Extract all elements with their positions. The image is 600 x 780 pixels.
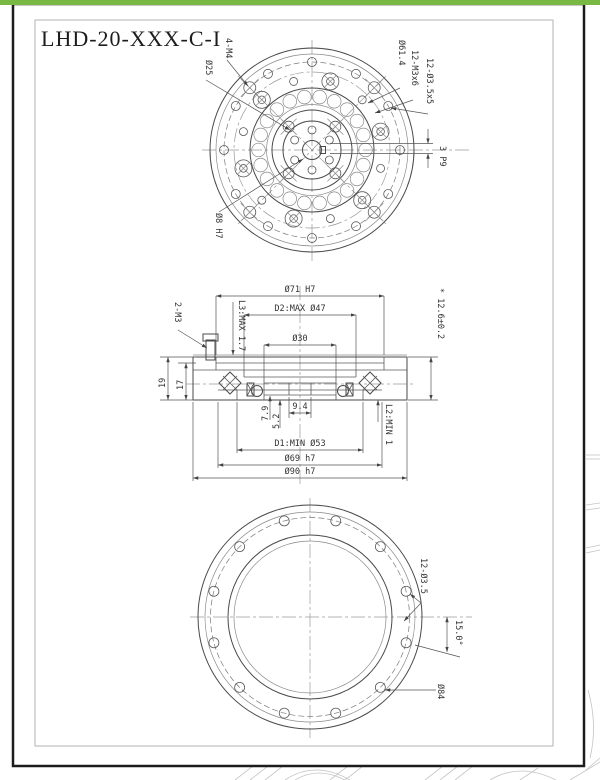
label-d84: Ø84	[435, 684, 446, 699]
label-keyway: 3 P9	[437, 146, 447, 166]
sketch-arc	[490, 771, 556, 780]
sketch-line	[235, 766, 253, 780]
label-12d35x5: 12-Ø3.5x5	[424, 58, 435, 104]
dim-d1-text: D1:MIN Ø53	[274, 438, 325, 449]
accent-top-bar	[0, 0, 600, 5]
dim-d90-text: Ø90 h7	[285, 466, 316, 477]
label-12m3x6: 12-M3x6	[409, 50, 419, 86]
sketch-line	[440, 766, 458, 780]
dim-angle-text: 15.0°	[453, 620, 463, 646]
sketch-arc	[588, 690, 594, 758]
sketch-line	[265, 766, 283, 780]
dim-l2-text: L2:MIN 1	[383, 404, 393, 445]
dim-94-text: 9.4	[292, 402, 307, 412]
sketch-line	[455, 766, 473, 780]
label-bore: Ø8 H7	[213, 213, 224, 239]
sketch-line	[586, 545, 600, 553]
dim-17-text: 17	[176, 380, 186, 390]
dim-19-text: 19	[158, 378, 168, 388]
sketch-line	[425, 766, 443, 780]
dim-d2-text: D2:MAX Ø47	[274, 303, 325, 314]
label-rear-holes: 12-Ø3.5	[418, 558, 429, 594]
dim-d71-text: Ø71 H7	[285, 284, 316, 295]
dim-width-text: * 12.6±0.2	[435, 288, 445, 339]
label-4m4: 4-M4	[223, 38, 233, 58]
dim-79-text: 7.9	[261, 406, 271, 421]
sketch-line	[345, 766, 363, 780]
label-d614: Ø61.4	[396, 40, 407, 66]
dim-d69-text: Ø69 h7	[285, 453, 316, 464]
drawing-title: LHD-20-XXX-C-I	[41, 26, 221, 51]
dim-d30-text: Ø30	[292, 333, 307, 344]
dim-52-text: 5.2	[272, 414, 282, 429]
sketch-line	[250, 766, 268, 780]
dim-l3-text: L3:MAX 1.7	[236, 300, 246, 351]
label-d25: Ø25	[203, 60, 214, 75]
sketch-line	[586, 455, 600, 459]
drawing-page: LHD-20-XXX-C-I 4-M4 Ø25 Ø61.4 12-	[0, 0, 600, 780]
sketch-line	[520, 768, 538, 780]
label-2m3: 2-M3	[172, 302, 182, 322]
outer-frame	[13, 4, 584, 766]
sketch-line	[586, 758, 600, 770]
sketch-arc	[285, 770, 350, 780]
technical-drawing-canvas: LHD-20-XXX-C-I 4-M4 Ø25 Ø61.4 12-	[0, 0, 600, 780]
sketch-line	[586, 503, 600, 510]
